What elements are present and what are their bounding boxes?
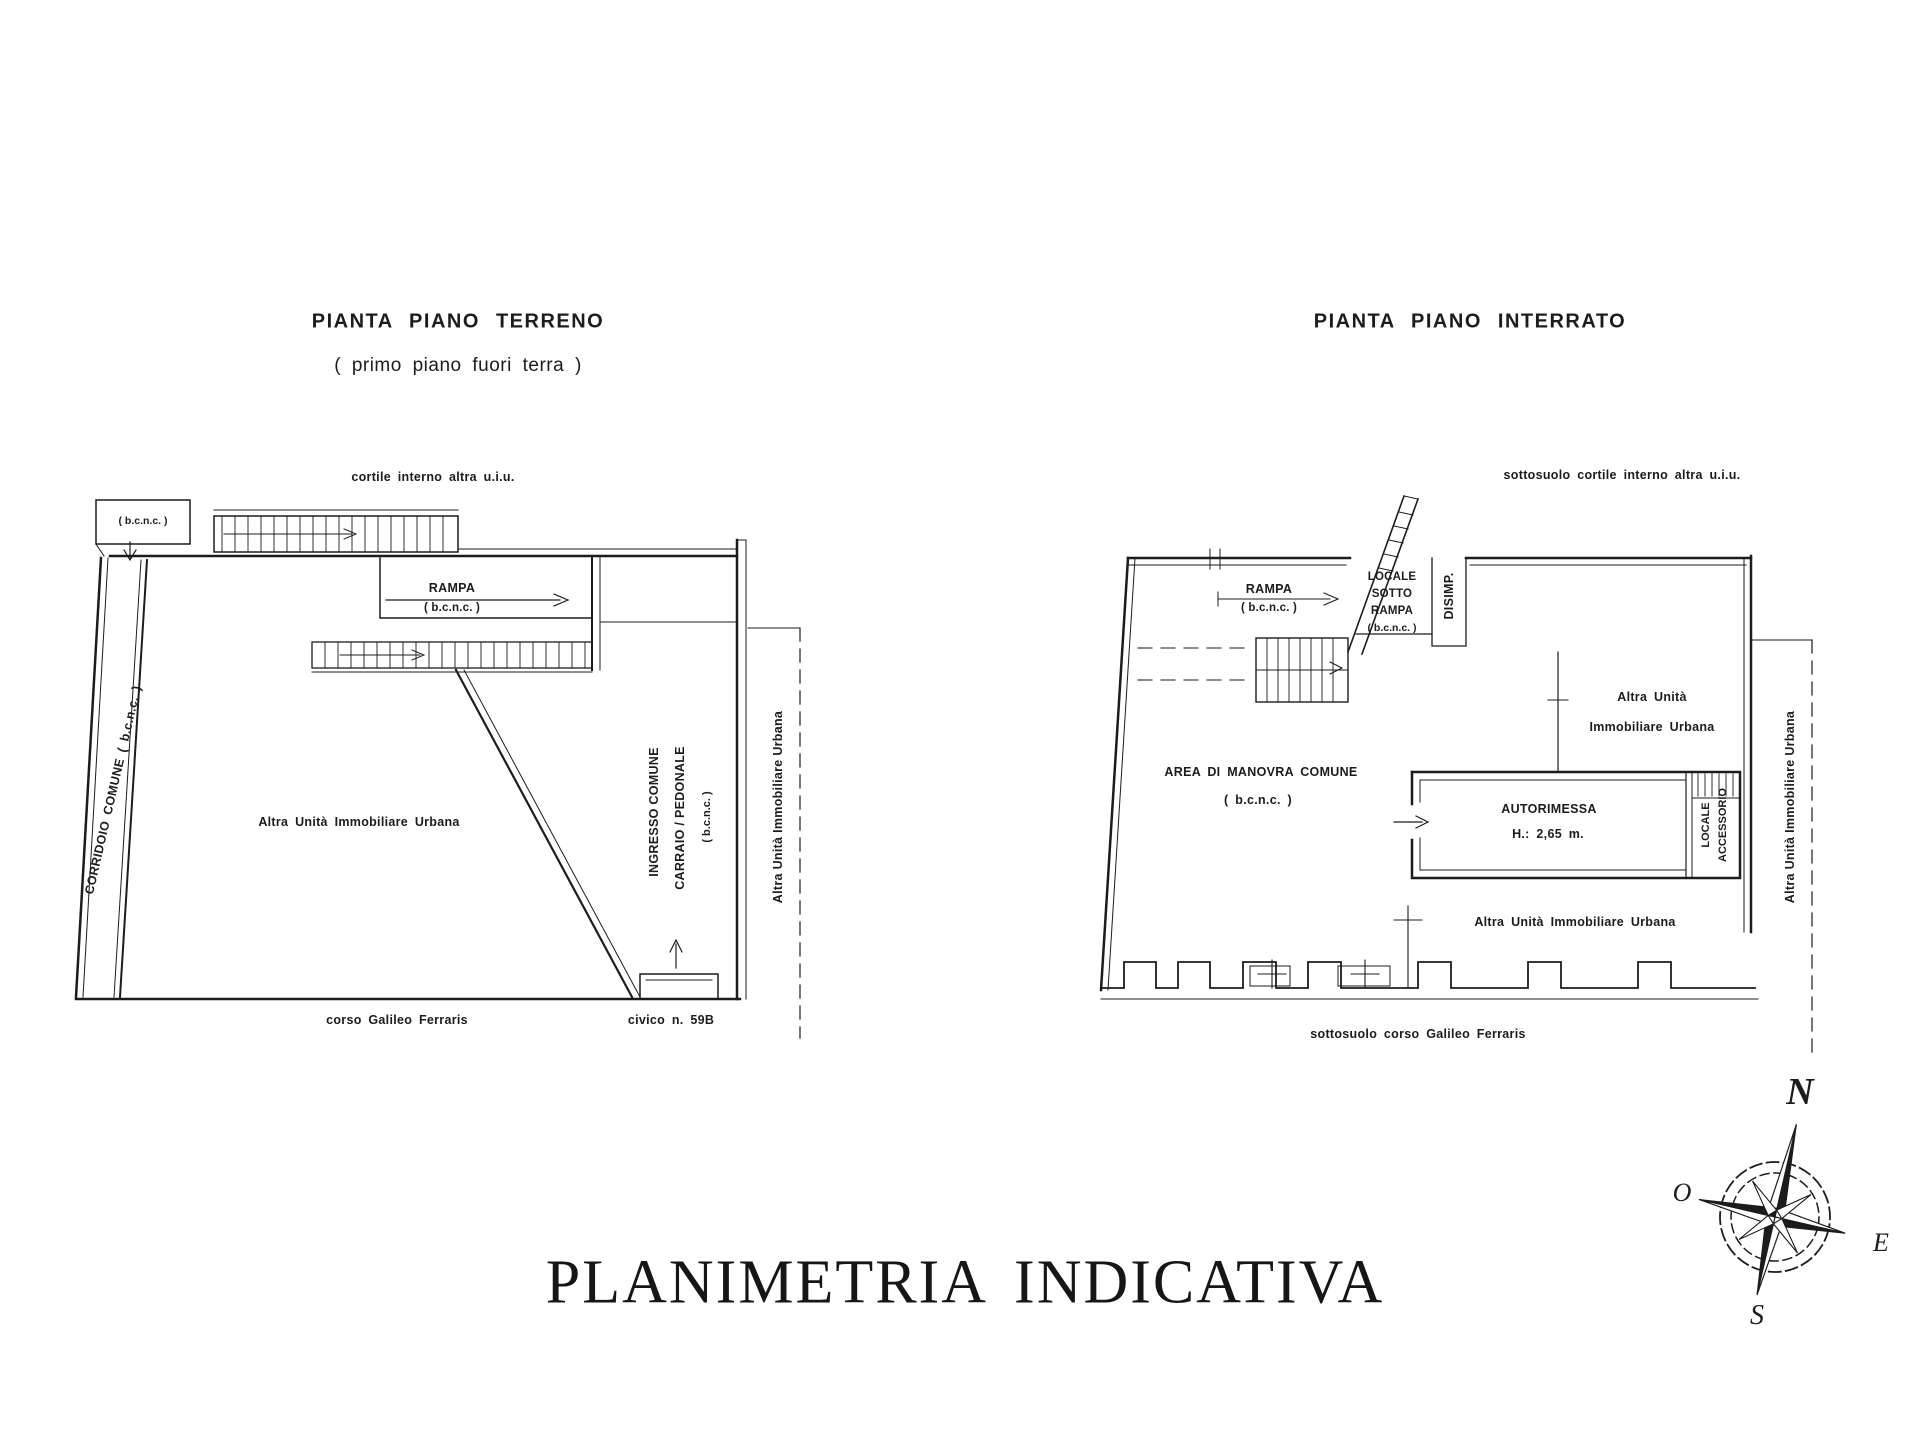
label-locale-sotto-rampa-4: ( b.c.n.c. )	[1367, 622, 1416, 634]
compass-rose	[1681, 1107, 1867, 1311]
label-rampa-right: RAMPA	[1246, 582, 1292, 596]
right-plan-title: PIANTA PIANO INTERRATO	[1314, 311, 1626, 334]
label-rampa-right-sub: ( b.c.n.c. )	[1241, 602, 1297, 614]
label-locale-sotto-rampa-2: SOTTO	[1372, 588, 1412, 600]
label-disimp: DISIMP.	[1442, 572, 1456, 619]
label-ingresso-3: ( b.c.n.c. )	[701, 791, 713, 842]
label-altra-unita-bottom: Altra Unità Immobiliare Urbana	[1474, 915, 1675, 929]
label-altra-unita-top-2: Immobiliare Urbana	[1589, 720, 1714, 734]
floor-plan-sheet: PIANTA PIANO TERRENO ( primo piano fuori…	[0, 0, 1920, 1440]
label-autorimessa-height: H.: 2,65 m.	[1512, 827, 1584, 841]
label-street-left: corso Galileo Ferraris	[326, 1013, 468, 1027]
compass-south-label: S	[1750, 1300, 1764, 1332]
label-altra-unita-right-of-right-plan: Altra Unità Immobiliare Urbana	[1783, 711, 1797, 903]
label-area-manovra: AREA DI MANOVRA COMUNE	[1164, 765, 1357, 779]
compass-west-label: O	[1673, 1178, 1692, 1208]
compass-north-label: N	[1786, 1070, 1813, 1114]
label-locale-sotto-rampa-3: RAMPA	[1371, 605, 1413, 617]
label-altra-unita-right-of-left-plan: Altra Unità Immobiliare Urbana	[771, 711, 785, 903]
compass-east-label: E	[1873, 1228, 1889, 1258]
label-autorimessa: AUTORIMESSA	[1501, 802, 1596, 816]
label-courtyard-left: cortile interno altra u.i.u.	[351, 470, 514, 484]
label-rampa-left-sub: ( b.c.n.c. )	[424, 602, 480, 614]
label-altra-unita-left: Altra Unità Immobiliare Urbana	[258, 815, 459, 829]
label-locale-sotto-rampa-1: LOCALE	[1368, 571, 1416, 583]
label-locale-accessorio-2: ACCESSORIO	[1717, 788, 1729, 862]
label-courtyard-right: sottosuolo cortile interno altra u.i.u.	[1504, 468, 1741, 482]
label-civic-number: civico n. 59B	[628, 1013, 714, 1027]
label-locale-accessorio-1: LOCALE	[1700, 802, 1712, 847]
label-ingresso-1: INGRESSO COMUNE	[647, 747, 661, 877]
label-area-manovra-sub: ( b.c.n.c. )	[1224, 793, 1292, 807]
label-street-right: sottosuolo corso Galileo Ferraris	[1310, 1027, 1525, 1041]
label-altra-unita-top-1: Altra Unità	[1617, 690, 1687, 704]
left-plan-subtitle: ( primo piano fuori terra )	[334, 355, 582, 377]
left-plan-title: PIANTA PIANO TERRENO	[312, 311, 604, 334]
label-rampa-left: RAMPA	[429, 581, 475, 595]
sheet-title: PLANIMETRIA INDICATIVA	[546, 1248, 1384, 1319]
label-bcnc-box: ( b.c.n.c. )	[118, 515, 167, 527]
label-ingresso-2: CARRAIO / PEDONALE	[673, 746, 687, 890]
